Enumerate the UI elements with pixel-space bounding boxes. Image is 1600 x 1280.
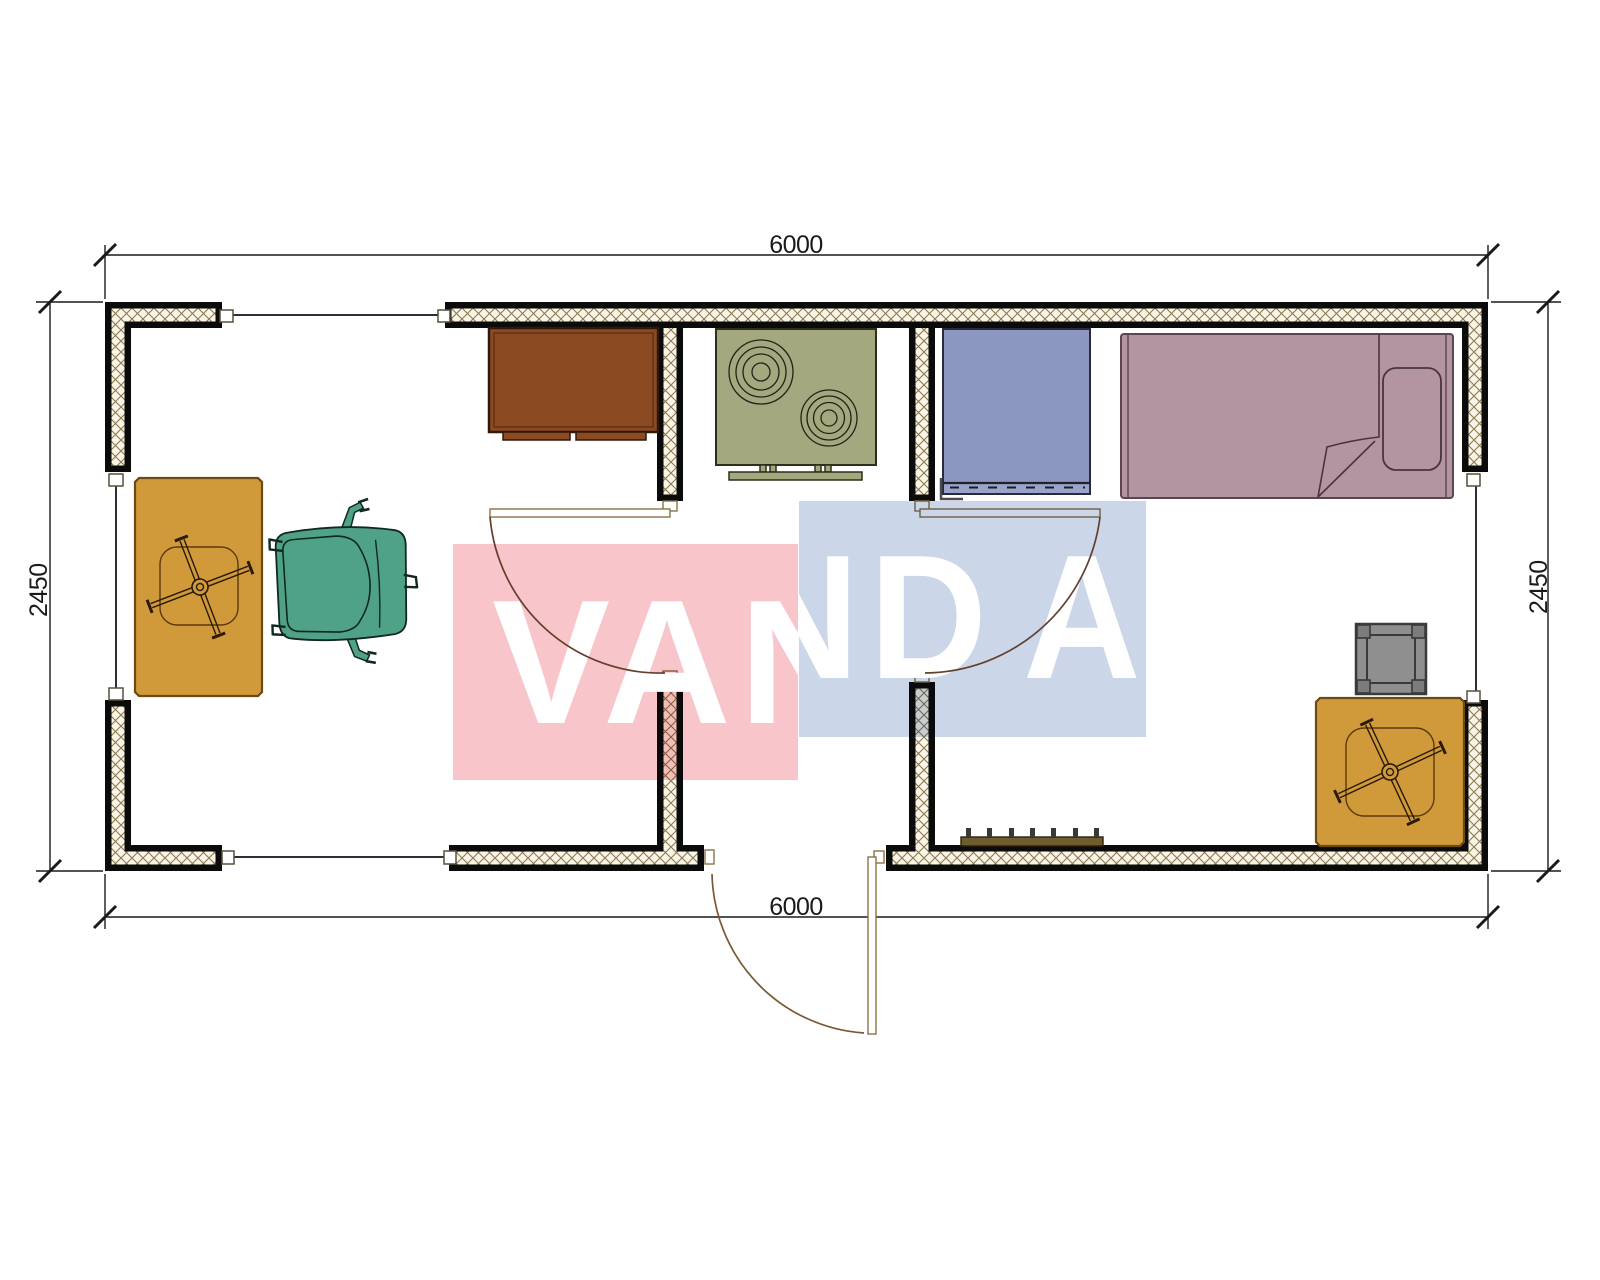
- svg-text:2450: 2450: [1525, 560, 1553, 614]
- svg-text:6000: 6000: [769, 231, 823, 259]
- svg-text:2450: 2450: [25, 563, 53, 617]
- svg-text:6000: 6000: [769, 893, 823, 921]
